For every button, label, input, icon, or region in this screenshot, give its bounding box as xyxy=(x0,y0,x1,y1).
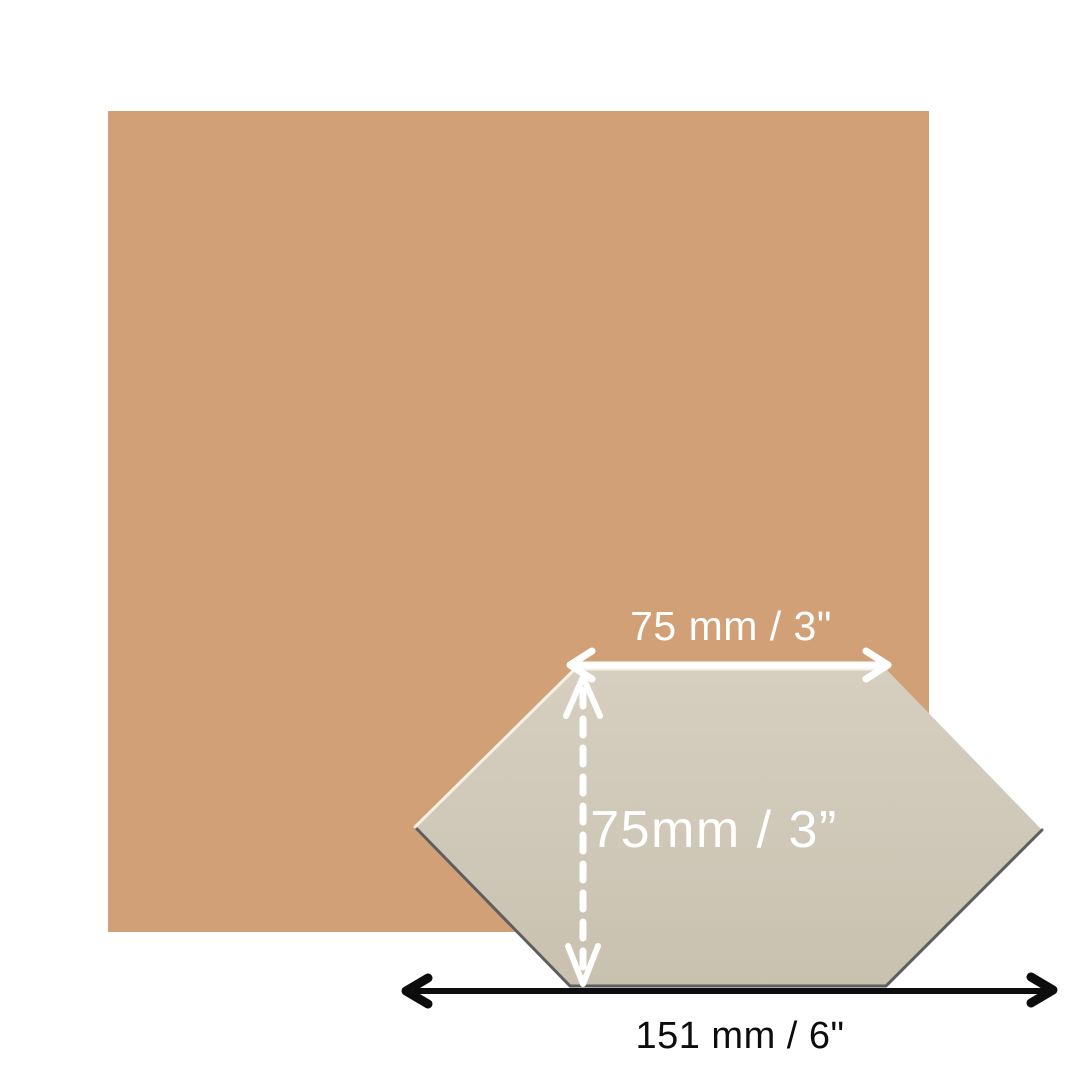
total-width-label: 151 mm / 6" xyxy=(635,1015,844,1057)
top-width-label: 75 mm / 3" xyxy=(630,603,832,649)
diagram-canvas: 75 mm / 3" 75mm / 3” 151 mm / 6" xyxy=(0,0,1080,1080)
height-label: 75mm / 3” xyxy=(590,801,838,859)
tile-dimension-diagram: 75 mm / 3" 75mm / 3” 151 mm / 6" xyxy=(0,0,1080,1080)
